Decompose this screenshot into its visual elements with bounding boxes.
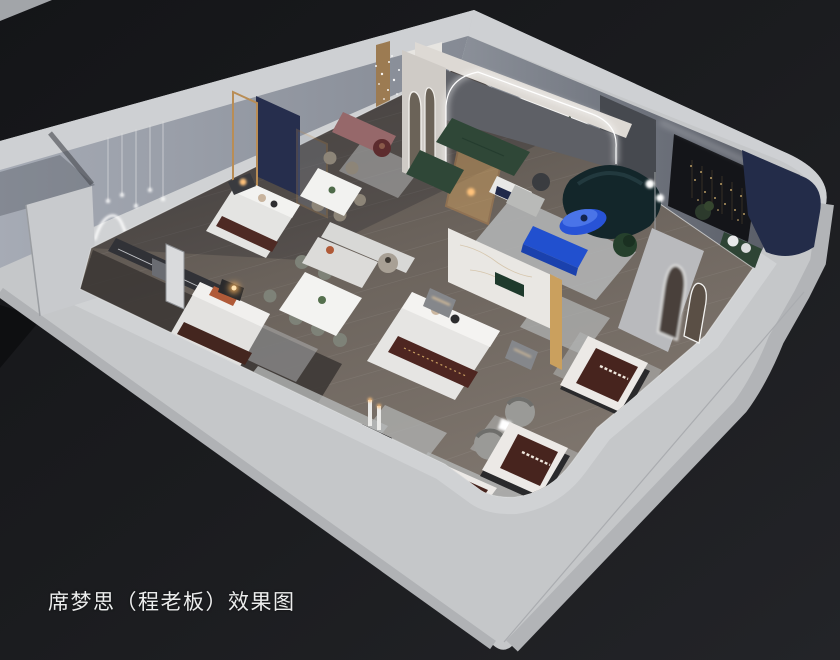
bed3-black-pillow: [451, 315, 460, 324]
gold-pillar: [550, 274, 562, 370]
dining2-flowers: [318, 296, 326, 304]
lamp2-glow: [377, 404, 381, 408]
bed1-lamp-glow: [240, 179, 247, 186]
chair-inner: [623, 235, 635, 247]
bed1-accent-pillow: [258, 194, 266, 202]
lamp1-glow: [368, 398, 372, 402]
table-sculpture: [581, 215, 588, 222]
render-canvas: 席梦思（程老板）效果图: [0, 0, 840, 660]
small-arch-mirror-2: [425, 88, 435, 160]
dark-lounge-chair: [532, 173, 550, 191]
caption-title: 席梦思（程老板）效果图: [48, 586, 296, 616]
dining1-plant: [329, 187, 336, 194]
cylinder-lamp-1: [368, 400, 372, 426]
daybed-rust-pillow: [326, 246, 334, 254]
white-pillow-1: [728, 236, 739, 247]
case-lamp-glow: [467, 188, 475, 196]
table-decor: [379, 143, 385, 149]
cylinder-lamp-2: [377, 406, 381, 430]
round-table-plant: [385, 257, 391, 263]
showroom-render: [0, 0, 840, 660]
bed2-orb-core: [232, 286, 237, 291]
leaning-mirror: [166, 244, 184, 309]
bed1-dark-pillow: [271, 201, 278, 208]
white-pillow-2: [741, 243, 751, 253]
